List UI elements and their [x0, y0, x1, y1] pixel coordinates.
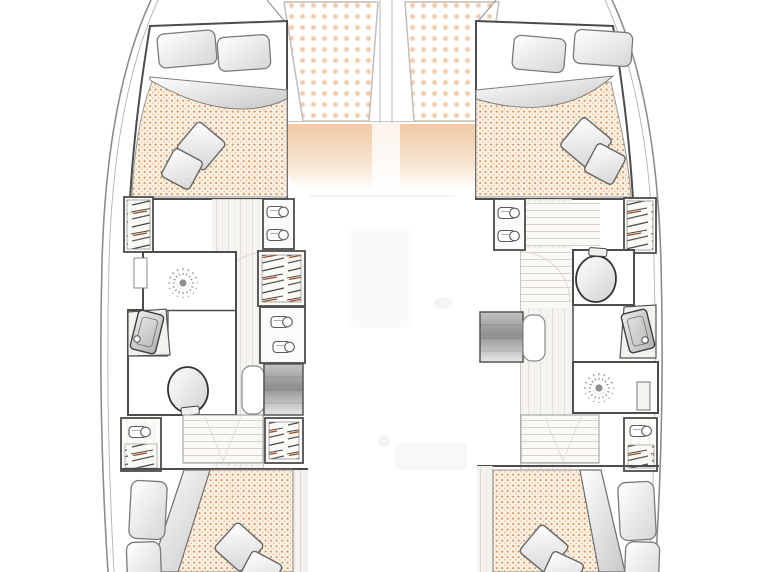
port-stair-landing	[242, 366, 264, 414]
port-forward-cabin	[130, 21, 287, 199]
port-toilet-tank	[181, 406, 200, 416]
stbd-shower-bench	[637, 382, 650, 410]
bow-section	[284, 0, 499, 191]
faucet-icon	[642, 337, 648, 343]
port-aft-steps	[183, 415, 263, 463]
saloon-ghost	[310, 196, 467, 470]
port-aft-side-shelf	[292, 470, 308, 572]
port-bathroom	[128, 252, 236, 417]
stbd-aft-cabin	[477, 466, 660, 572]
stbd-forward-pillow-2	[573, 29, 633, 67]
stbd-forward-pillow-1	[512, 35, 567, 73]
port-aft-cabin	[121, 469, 308, 572]
port-companionway	[242, 364, 303, 415]
stbd-aft-pillow-1	[618, 481, 657, 541]
stbd-stair-landing	[523, 315, 545, 361]
saloon-detail-ghost	[434, 297, 452, 309]
stbd-corridor-steps-fwd	[521, 202, 600, 246]
stbd-outboard-locker-aft	[624, 418, 657, 471]
foredeck-center-post	[372, 124, 400, 190]
port-outboard-locker-aft	[121, 418, 161, 471]
towel-icon	[267, 230, 288, 241]
port-aft-pillow-2	[126, 541, 162, 572]
port-hanging-locker-aft-icon	[269, 422, 299, 459]
port-locker-aft-hanging-icon	[125, 444, 157, 468]
stbd-shelf-unit-fwd	[494, 199, 525, 250]
towel-icon	[271, 317, 292, 328]
port-hanging-locker-mid-icon	[262, 255, 301, 302]
port-forward-pillow-2	[217, 34, 271, 72]
stbd-aft-side-shelf	[477, 466, 493, 572]
port-aft-pillow-1	[129, 480, 168, 540]
port-outboard-wardrobe-hanging-icon	[127, 200, 150, 249]
bow-center-beam	[380, 0, 392, 123]
towel-icon	[498, 231, 519, 242]
floorplan-canvas	[0, 0, 763, 572]
faucet-icon	[134, 336, 140, 342]
saloon-detail-ghost-2	[378, 435, 390, 447]
port-trampoline	[284, 2, 378, 121]
stbd-locker-aft-hanging-icon	[628, 445, 654, 468]
towel-icon	[630, 426, 651, 437]
towel-icon	[498, 208, 519, 219]
stbd-companionway	[480, 312, 545, 362]
stbd-bathroom	[573, 247, 658, 413]
stbd-aft-steps	[521, 415, 599, 463]
towel-icon	[267, 207, 288, 218]
saloon-shape-ghost-2	[395, 443, 467, 470]
catamaran-floorplan	[0, 0, 763, 572]
towel-icon	[129, 427, 150, 438]
port-shower-shelf	[134, 258, 147, 288]
stbd-aft-pillow-2	[624, 541, 660, 572]
port-hull	[101, 0, 308, 572]
stbd-stairs	[480, 312, 523, 362]
port-shelf-unit-mid	[260, 307, 305, 363]
stbd-toilet-tank	[589, 247, 608, 256]
towel-icon	[273, 342, 294, 353]
starboard-hull	[476, 0, 662, 572]
stbd-outboard-wardrobe-hanging-icon	[627, 201, 653, 250]
stbd-forward-cabin	[476, 21, 633, 199]
saloon-shape-ghost	[348, 228, 412, 328]
port-forward-pillow-1	[157, 30, 218, 69]
